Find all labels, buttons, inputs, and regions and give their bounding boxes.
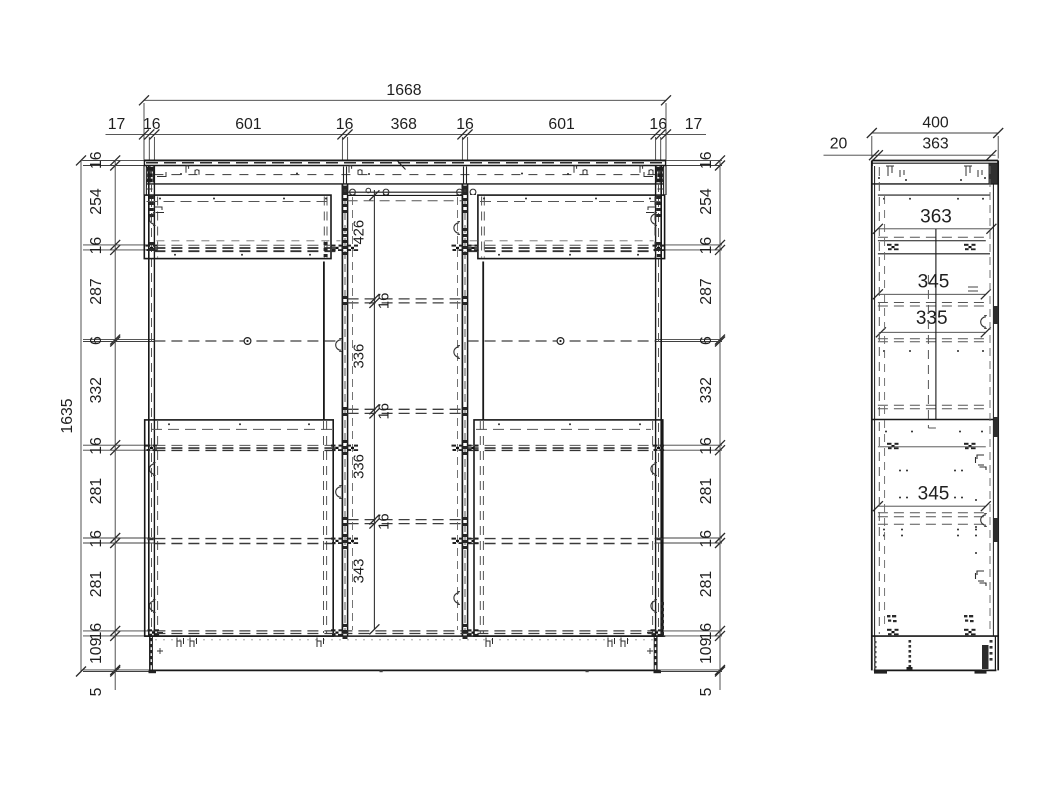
svg-text:254: 254 xyxy=(698,188,715,215)
svg-text:6: 6 xyxy=(88,336,105,345)
svg-text:16: 16 xyxy=(377,513,393,529)
svg-text:336: 336 xyxy=(352,454,368,479)
svg-text:345: 345 xyxy=(918,484,950,505)
svg-text:16: 16 xyxy=(698,437,715,455)
svg-text:16: 16 xyxy=(377,403,393,419)
svg-text:16: 16 xyxy=(698,237,715,255)
svg-text:281: 281 xyxy=(698,571,715,598)
svg-text:5: 5 xyxy=(698,687,715,696)
svg-text:109: 109 xyxy=(698,637,715,664)
svg-text:363: 363 xyxy=(922,136,949,153)
svg-text:16: 16 xyxy=(88,437,105,455)
svg-text:109: 109 xyxy=(88,637,105,664)
svg-text:281: 281 xyxy=(698,478,715,505)
svg-text:336: 336 xyxy=(352,344,368,369)
svg-text:16: 16 xyxy=(698,151,715,169)
svg-text:287: 287 xyxy=(88,278,105,304)
svg-text:16: 16 xyxy=(143,116,161,133)
svg-text:16: 16 xyxy=(88,530,105,548)
svg-text:16: 16 xyxy=(88,237,105,255)
svg-text:345: 345 xyxy=(918,272,950,293)
svg-text:17: 17 xyxy=(108,116,126,133)
svg-text:5: 5 xyxy=(88,687,105,696)
svg-text:426: 426 xyxy=(352,220,368,245)
svg-text:400: 400 xyxy=(922,114,949,131)
svg-text:16: 16 xyxy=(88,151,105,169)
svg-text:16: 16 xyxy=(456,116,474,133)
svg-text:16: 16 xyxy=(377,293,393,309)
svg-text:254: 254 xyxy=(88,188,105,215)
svg-text:332: 332 xyxy=(88,377,105,403)
svg-text:287: 287 xyxy=(698,278,715,304)
svg-text:16: 16 xyxy=(336,116,354,133)
svg-text:343: 343 xyxy=(352,559,368,584)
svg-text:363: 363 xyxy=(920,207,952,228)
svg-text:368: 368 xyxy=(391,116,418,133)
svg-text:16: 16 xyxy=(698,530,715,548)
svg-text:16: 16 xyxy=(649,116,667,133)
svg-text:281: 281 xyxy=(88,571,105,598)
svg-text:20: 20 xyxy=(830,136,848,153)
svg-text:281: 281 xyxy=(88,478,105,505)
svg-text:6: 6 xyxy=(698,336,715,345)
svg-text:332: 332 xyxy=(698,377,715,403)
svg-text:1668: 1668 xyxy=(386,82,421,99)
svg-text:335: 335 xyxy=(916,308,948,329)
svg-text:601: 601 xyxy=(548,116,575,133)
svg-text:1635: 1635 xyxy=(59,398,76,433)
svg-text:601: 601 xyxy=(235,116,262,133)
svg-text:17: 17 xyxy=(685,116,703,133)
